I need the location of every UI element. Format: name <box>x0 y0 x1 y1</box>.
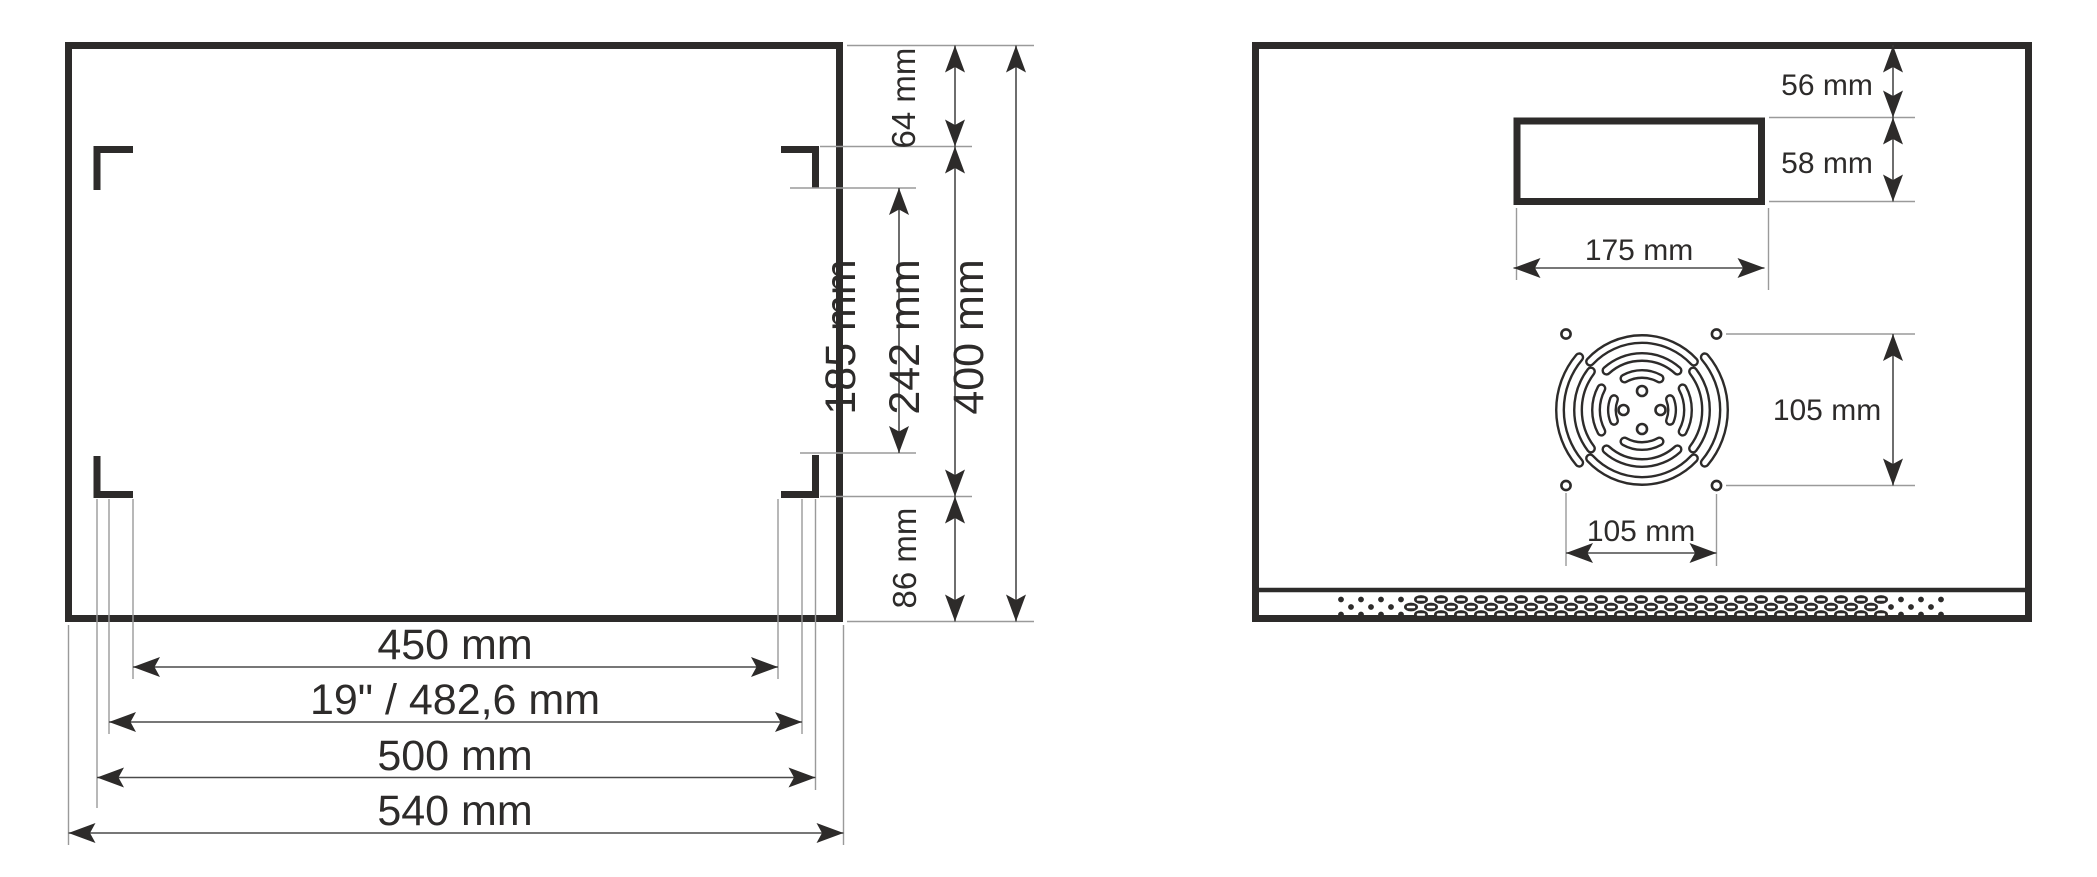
fan-slot-inner <box>1670 399 1672 421</box>
vent-slot-slit <box>1877 598 1885 601</box>
vent-hole <box>1898 597 1904 603</box>
vent-slot-slit <box>1857 613 1865 616</box>
rear-view: 56 mm 58 mm 175 mm 105 mm 105 mm <box>1256 46 2029 619</box>
rack-bracket-top-left <box>97 150 133 191</box>
vent-slot-slit <box>1617 598 1625 601</box>
vent-slot-slit <box>1617 613 1625 616</box>
vent-slot-slit <box>1577 598 1585 601</box>
vent-slot-slit <box>1597 598 1605 601</box>
vent-hole <box>1908 604 1914 610</box>
fan-hub-hole <box>1656 405 1666 415</box>
vent-slot-slit <box>1757 598 1765 601</box>
fan-screw-hole <box>1712 329 1721 338</box>
vent-slot-slit <box>1517 613 1525 616</box>
dim-label-cutout-width: 175 mm <box>1585 234 1693 267</box>
dim-label-width-outer: 540 mm <box>377 787 532 835</box>
vent-slot-slit <box>1717 598 1725 601</box>
vent-hole <box>1378 597 1384 603</box>
vent-hole <box>1348 604 1354 610</box>
vent-slot-slit <box>1557 613 1565 616</box>
vent-slot-slit <box>1417 613 1425 616</box>
vent-slot-slit <box>1547 606 1555 609</box>
vent-slot-slit <box>1437 613 1445 616</box>
vent-slot-slit <box>1657 613 1665 616</box>
vent-slot-slit <box>1517 598 1525 601</box>
vent-slot-slit <box>1777 613 1785 616</box>
vent-slot-slit <box>1477 613 1485 616</box>
vent-slot-slit <box>1797 613 1805 616</box>
vent-slot-slit <box>1867 606 1875 609</box>
vent-hole <box>1378 612 1384 618</box>
fan-hub-hole <box>1637 424 1647 434</box>
vent-slot-slit <box>1747 606 1755 609</box>
fan-grille <box>1560 329 1724 490</box>
vent-slot-slit <box>1497 598 1505 601</box>
vent-slot-slit <box>1677 598 1685 601</box>
vent-hole <box>1918 612 1924 618</box>
vent-hole <box>1368 604 1374 610</box>
vent-slot-slit <box>1487 606 1495 609</box>
vent-slot-slit <box>1837 613 1845 616</box>
vent-hole <box>1938 612 1944 618</box>
vent-slot-slit <box>1637 613 1645 616</box>
vent-slot-slit <box>1537 598 1545 601</box>
front-view: 64 mm 185 mm 242 mm 400 mm 86 mm 450 mm … <box>69 46 1035 846</box>
vent-slot-slit <box>1437 598 1445 601</box>
vent-slot-slit <box>1527 606 1535 609</box>
dim-label-width-mid: 500 mm <box>377 732 532 780</box>
dim-label-width-inner: 450 mm <box>377 621 532 669</box>
vent-slot-slit <box>1457 613 1465 616</box>
vent-slot-slit <box>1837 598 1845 601</box>
vent-slot-slit <box>1557 598 1565 601</box>
dim-label-cutout-height: 58 mm <box>1781 147 1873 180</box>
vent-slot-slit <box>1707 606 1715 609</box>
vent-slot-slit <box>1717 613 1725 616</box>
vent-slot-slit <box>1737 613 1745 616</box>
vent-slot-slit <box>1637 598 1645 601</box>
vent-slot-slit <box>1497 613 1505 616</box>
vent-slot-slit <box>1657 598 1665 601</box>
vent-hole <box>1898 612 1904 618</box>
vent-hole <box>1338 597 1344 603</box>
vent-slot-slit <box>1817 598 1825 601</box>
vent-slot-slit <box>1697 598 1705 601</box>
vent-slot-slit <box>1577 613 1585 616</box>
vent-slot-slit <box>1417 598 1425 601</box>
vent-slot-slit <box>1857 598 1865 601</box>
rack-bracket-bottom-left <box>97 456 133 495</box>
vent-hole <box>1358 612 1364 618</box>
rack-bracket-top-right <box>781 150 816 189</box>
rack-bracket-bottom-right <box>781 455 816 495</box>
vent-slot-slit <box>1807 606 1815 609</box>
vent-slot-slit <box>1797 598 1805 601</box>
fan-screw-hole <box>1561 481 1570 490</box>
drawing-canvas: 64 mm 185 mm 242 mm 400 mm 86 mm 450 mm … <box>0 0 2097 877</box>
fan-hub-hole <box>1637 386 1647 396</box>
dimension-drawing: 64 mm 185 mm 242 mm 400 mm 86 mm 450 mm … <box>0 0 2097 877</box>
fan-screw-hole <box>1712 481 1721 490</box>
dim-label-rail-opening: 185 mm <box>817 259 865 414</box>
vent-slot-slit <box>1607 606 1615 609</box>
vent-slot-slit <box>1817 613 1825 616</box>
dim-label-fan-horizontal: 105 mm <box>1587 515 1695 548</box>
vent-slot-slit <box>1427 606 1435 609</box>
vent-hole <box>1888 604 1894 610</box>
dim-label-top-offset: 64 mm <box>885 48 922 149</box>
vent-slot-slit <box>1777 598 1785 601</box>
vent-slot-slit <box>1697 613 1705 616</box>
vent-slot-slit <box>1767 606 1775 609</box>
vent-hole <box>1398 612 1404 618</box>
front-panel-outline <box>69 46 840 619</box>
vent-slot-slit <box>1677 613 1685 616</box>
vent-slot-slit <box>1847 606 1855 609</box>
fan-screw-hole <box>1561 329 1570 338</box>
vent-slot-slit <box>1627 606 1635 609</box>
vent-slot-slit <box>1757 613 1765 616</box>
vent-hole <box>1928 604 1934 610</box>
vent-slot-slit <box>1597 613 1605 616</box>
vent-slot-slit <box>1877 613 1885 616</box>
vent-slot-slit <box>1587 606 1595 609</box>
vent-slot-slit <box>1687 606 1695 609</box>
vent-slot-slit <box>1537 613 1545 616</box>
vent-hole <box>1938 597 1944 603</box>
dim-label-rail-span: 242 mm <box>881 259 929 414</box>
vent-slot-slit <box>1407 606 1415 609</box>
vent-slot-slit <box>1507 606 1515 609</box>
vent-hole <box>1388 604 1394 610</box>
vent-hole <box>1918 597 1924 603</box>
vent-slot-slit <box>1727 606 1735 609</box>
vent-slot-slit <box>1457 598 1465 601</box>
vent-slot-slit <box>1827 606 1835 609</box>
vent-slot-slit <box>1447 606 1455 609</box>
vent-slot-slit <box>1667 606 1675 609</box>
dim-label-bottom-offset: 86 mm <box>886 508 923 609</box>
vent-slot-slit <box>1467 606 1475 609</box>
dim-label-width-rack: 19" / 482,6 mm <box>310 676 600 724</box>
vent-slot-slit <box>1477 598 1485 601</box>
dim-label-cutout-top: 56 mm <box>1781 69 1873 102</box>
vent-slot-slit <box>1787 606 1795 609</box>
cable-cutout <box>1517 121 1762 202</box>
vent-slot-slit <box>1737 598 1745 601</box>
dim-label-height: 400 mm <box>945 259 993 414</box>
vent-hole <box>1398 597 1404 603</box>
vent-hole <box>1338 612 1344 618</box>
vent-slot-slit <box>1647 606 1655 609</box>
dim-label-fan-vertical: 105 mm <box>1773 394 1881 427</box>
vent-hole <box>1358 597 1364 603</box>
fan-hub-hole <box>1619 405 1629 415</box>
fan-slot-inner <box>1612 399 1614 421</box>
vent-slot-slit <box>1567 606 1575 609</box>
